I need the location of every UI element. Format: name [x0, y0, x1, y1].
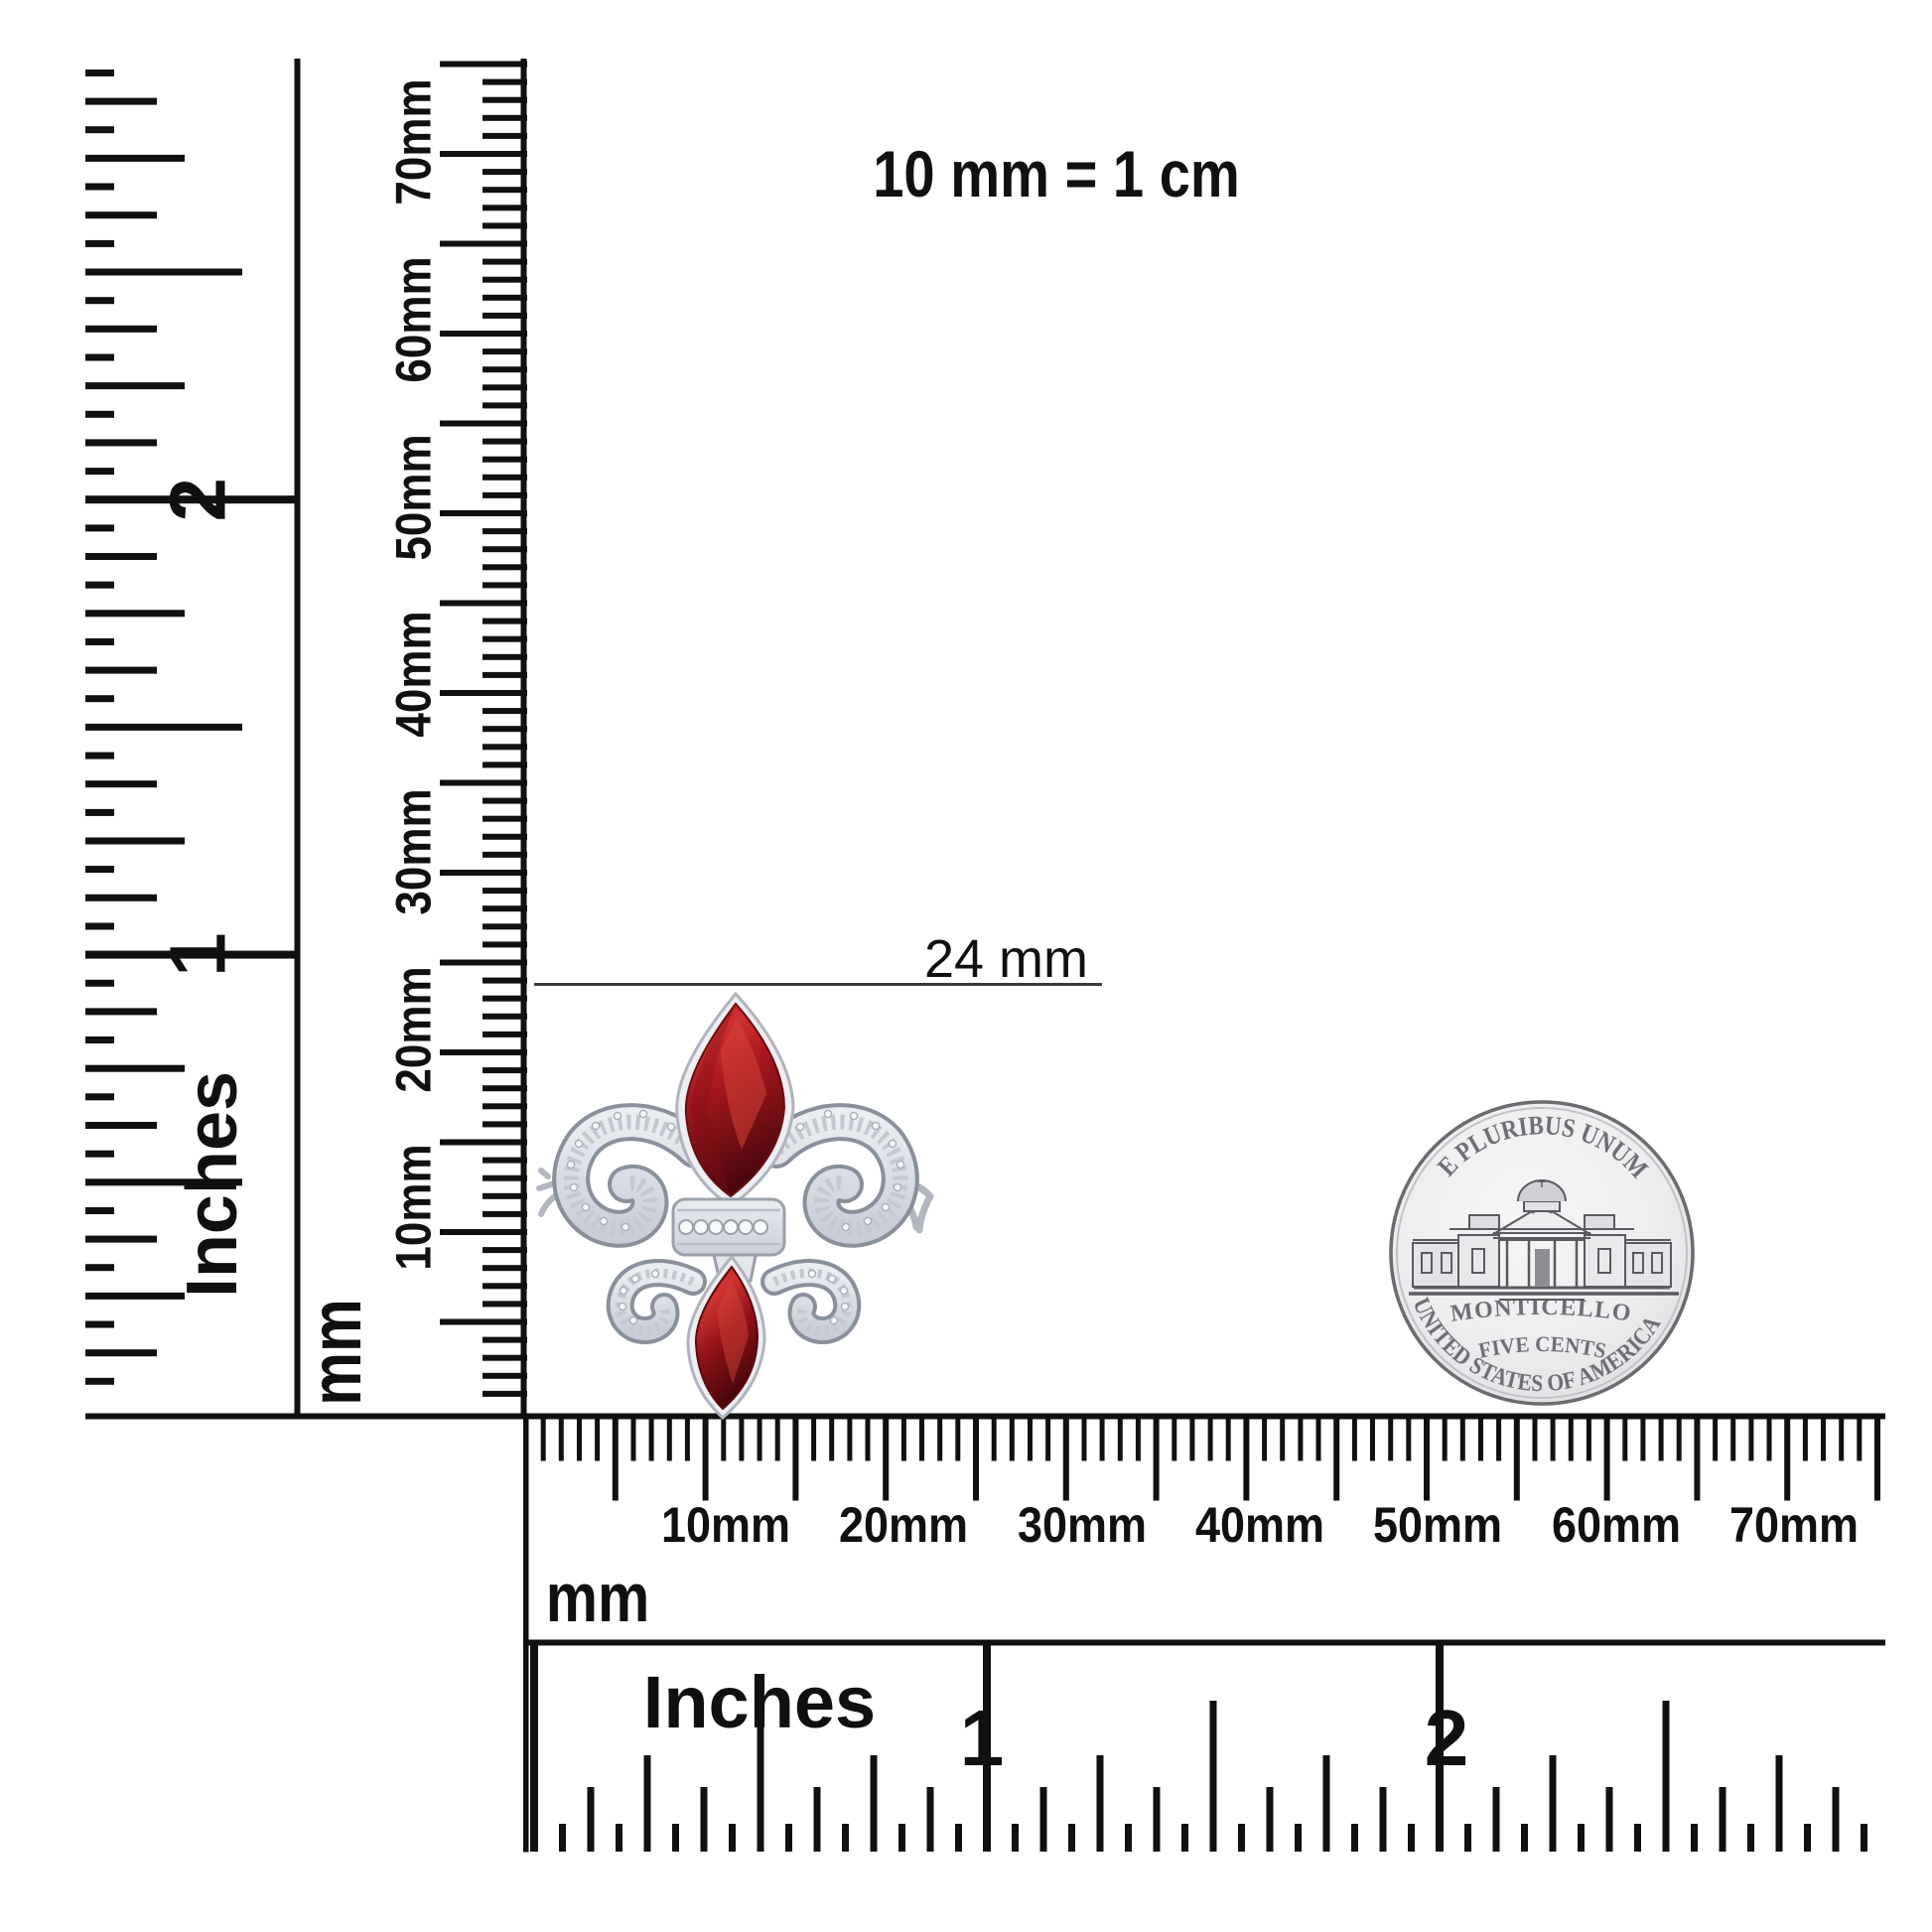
svg-text:40mm: 40mm	[385, 611, 441, 737]
svg-text:50mm: 50mm	[1373, 1498, 1502, 1554]
svg-text:24 mm: 24 mm	[924, 929, 1088, 989]
svg-text:2: 2	[154, 478, 242, 522]
svg-text:70mm: 70mm	[385, 78, 441, 205]
svg-text:2: 2	[1425, 1694, 1469, 1782]
svg-text:1: 1	[154, 932, 242, 977]
svg-text:30mm: 30mm	[385, 788, 441, 914]
svg-text:30mm: 30mm	[1018, 1498, 1147, 1554]
svg-text:mm: mm	[297, 1299, 376, 1406]
svg-text:mm: mm	[546, 1558, 650, 1636]
svg-text:10 mm = 1 cm: 10 mm = 1 cm	[873, 138, 1240, 210]
svg-text:20mm: 20mm	[839, 1498, 968, 1554]
svg-text:70mm: 70mm	[1729, 1498, 1859, 1554]
svg-text:60mm: 60mm	[385, 256, 441, 382]
svg-text:60mm: 60mm	[1552, 1498, 1681, 1554]
svg-text:50mm: 50mm	[385, 434, 441, 560]
svg-text:1: 1	[960, 1694, 1005, 1782]
svg-text:Inches: Inches	[173, 1071, 252, 1298]
svg-text:10mm: 10mm	[385, 1144, 441, 1270]
svg-text:10mm: 10mm	[661, 1498, 790, 1554]
svg-text:20mm: 20mm	[385, 966, 441, 1092]
svg-text:Inches: Inches	[643, 1661, 876, 1743]
svg-text:40mm: 40mm	[1195, 1498, 1324, 1554]
